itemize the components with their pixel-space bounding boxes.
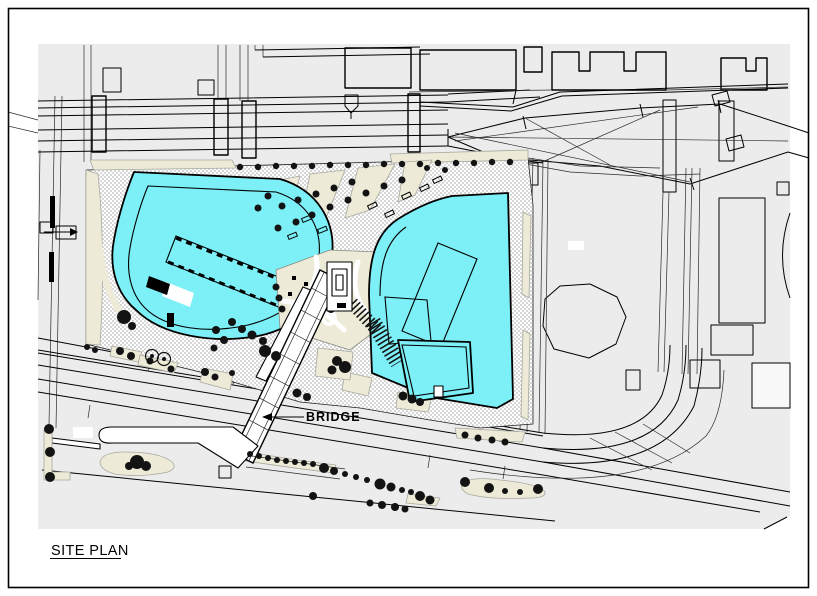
stair-tower: [327, 262, 352, 311]
title-block: SITE PLAN: [50, 543, 129, 559]
site-plan-drawing: BRIDGE SITE PLAN: [0, 0, 817, 596]
bridge-label: BRIDGE: [306, 410, 361, 424]
drawing-sheet: BRIDGE SITE PLAN: [0, 0, 817, 596]
site-plan-title: SITE PLAN: [51, 543, 129, 559]
